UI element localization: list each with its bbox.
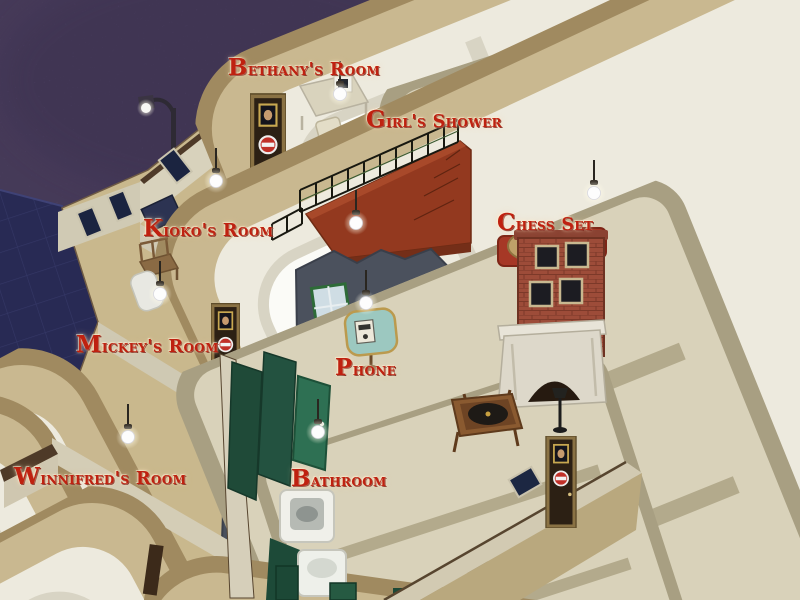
sims-house-overview: Bethany's Room Girl's Shower Kioko's Roo… (0, 0, 800, 600)
house-scene (0, 0, 800, 600)
label-phone: Phone (335, 354, 396, 381)
framed-picture[interactable] (536, 246, 558, 268)
label-mickeys-room: Mickey's Room (76, 331, 219, 358)
label-bathroom: Bathroom (291, 465, 387, 492)
framed-picture[interactable] (566, 243, 588, 267)
label-chess-set: Chess Set (497, 209, 593, 236)
myne-door-south[interactable] (546, 436, 576, 528)
label-bethanys-room: Bethany's Room (228, 54, 380, 81)
label-winnifreds-room: Winnifred's Room (14, 463, 186, 490)
framed-picture[interactable] (530, 282, 552, 306)
framed-picture[interactable] (560, 279, 582, 303)
toilet[interactable] (280, 490, 334, 542)
label-kiokos-room: Kioko's Room (143, 215, 273, 242)
label-girls-shower: Girl's Shower (366, 106, 502, 133)
stall-wall (228, 362, 262, 500)
